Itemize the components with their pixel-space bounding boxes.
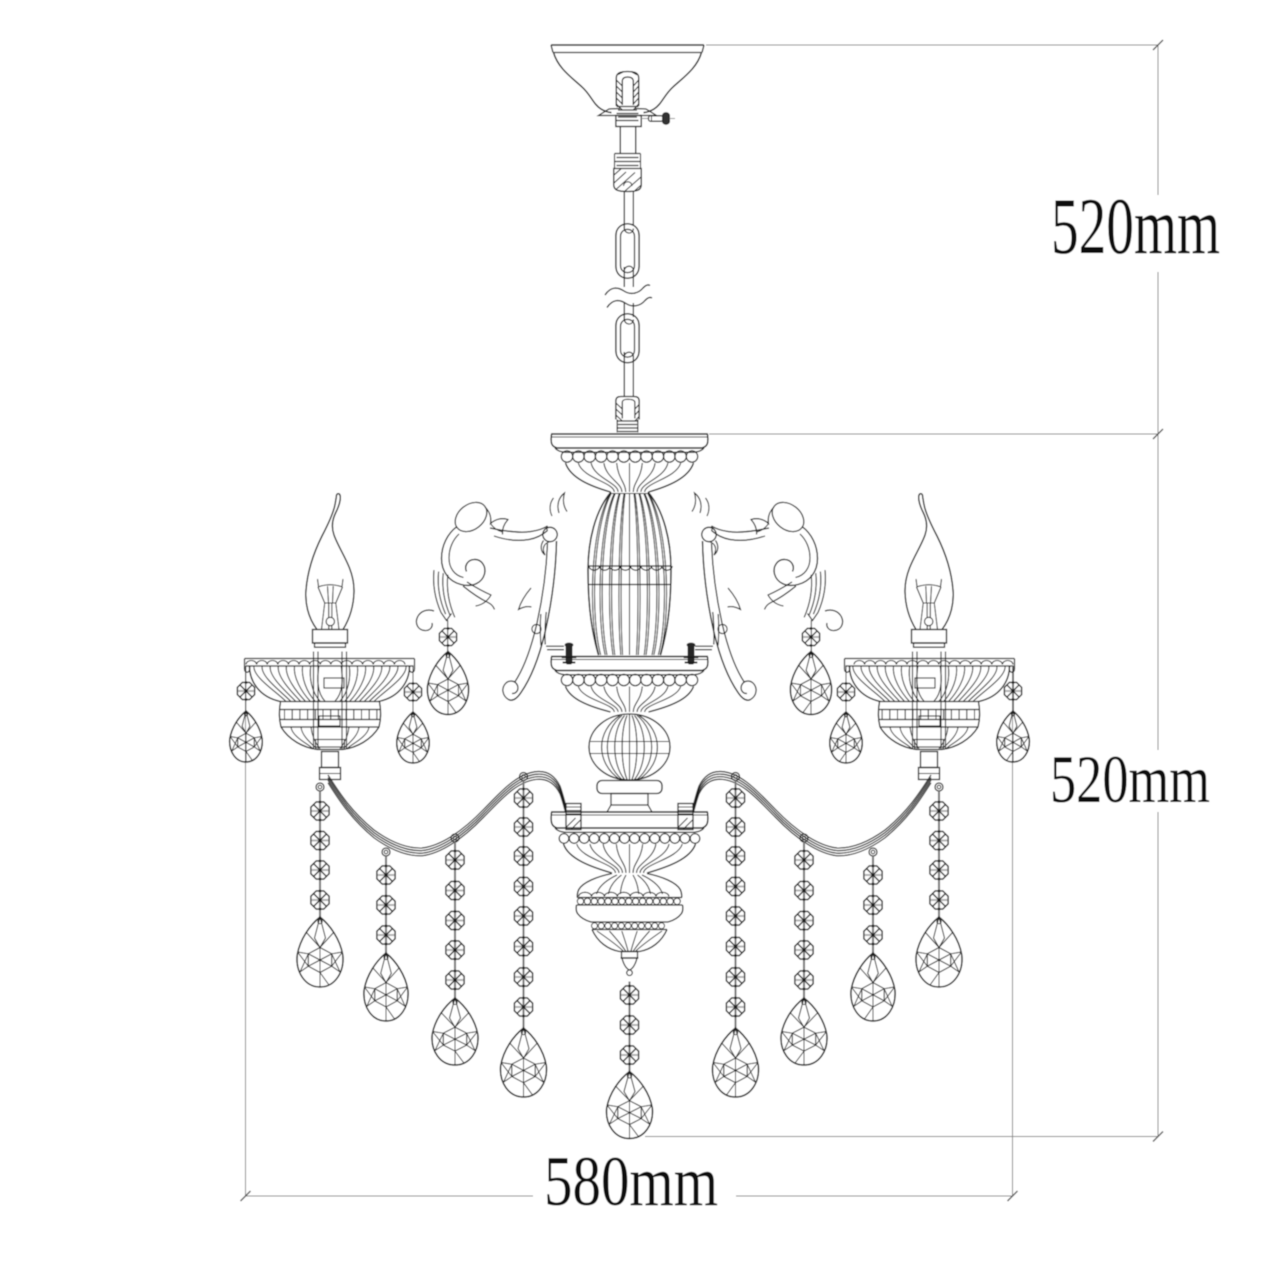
svg-text:520mm: 520mm [1050,741,1210,817]
svg-text:580mm: 580mm [544,1143,718,1221]
svg-text:520mm: 520mm [1051,183,1220,271]
